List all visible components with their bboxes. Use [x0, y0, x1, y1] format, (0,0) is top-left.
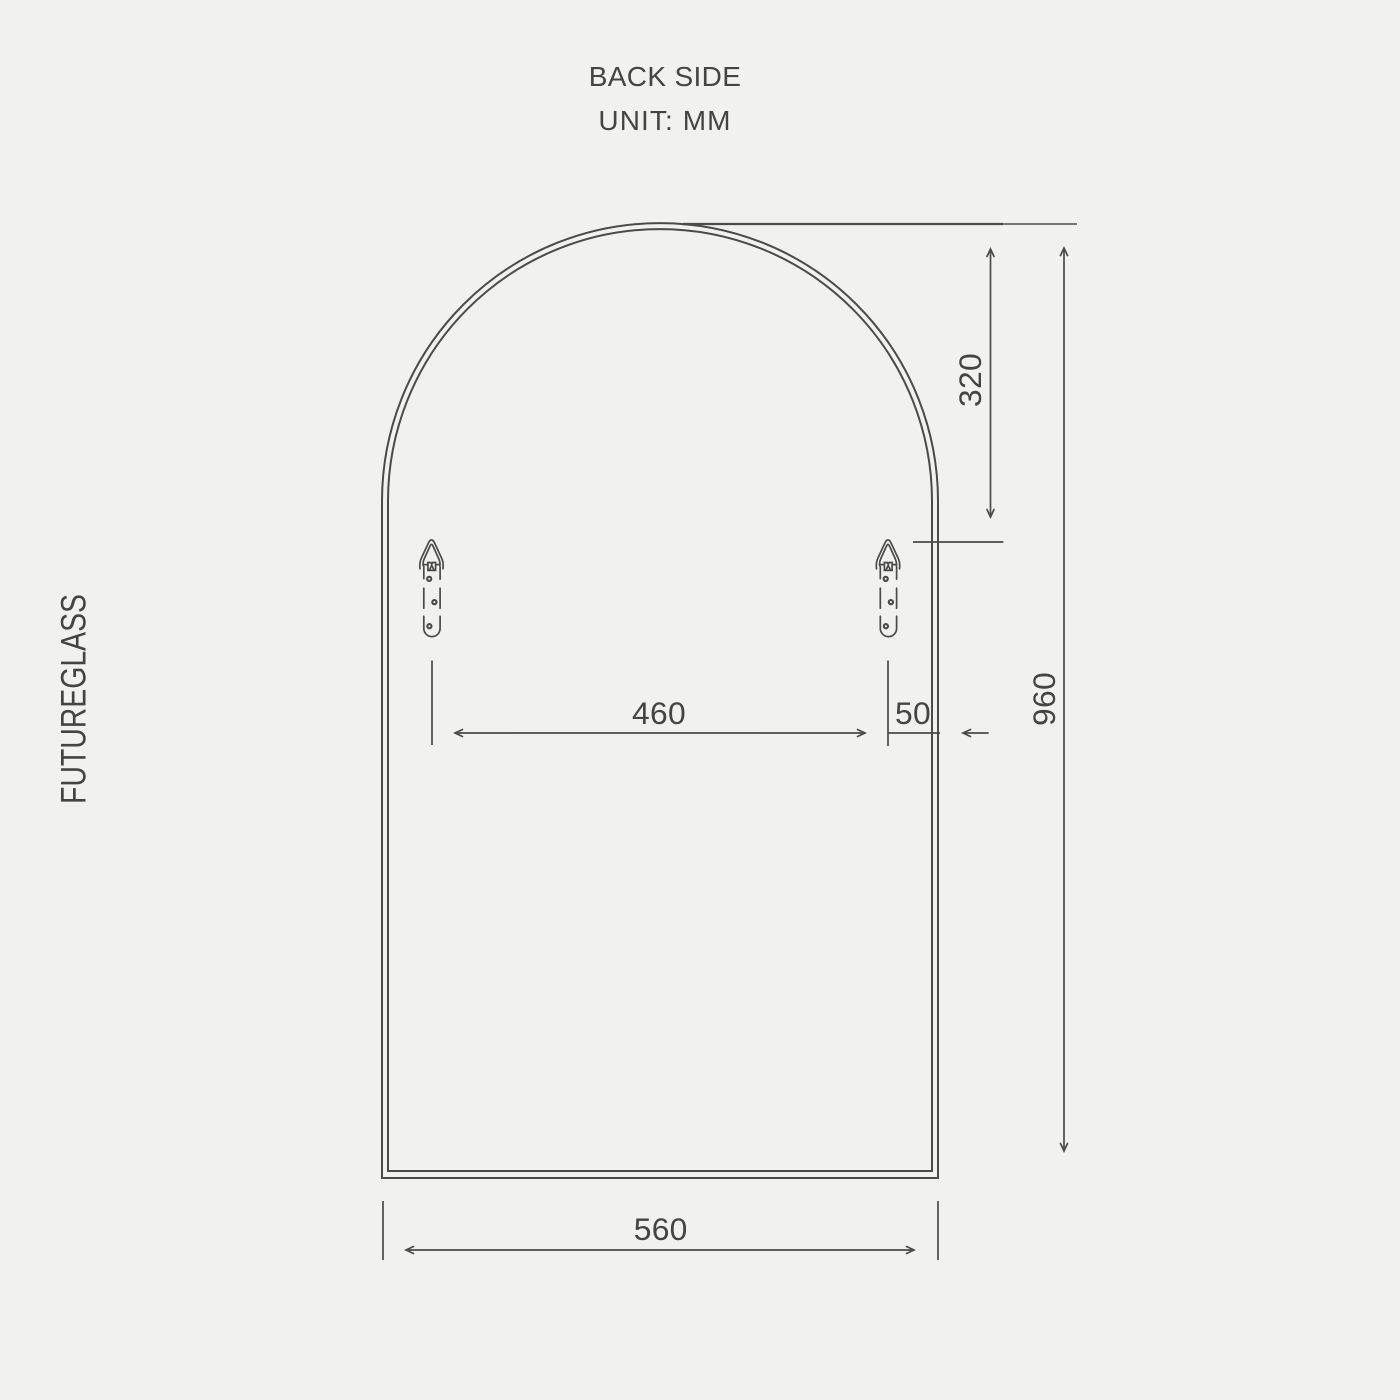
svg-text:460: 460 [632, 695, 686, 731]
svg-text:560: 560 [634, 1211, 688, 1247]
svg-text:960: 960 [1026, 672, 1062, 726]
svg-text:FUTUREGLASS: FUTUREGLASS [55, 594, 94, 804]
svg-text:BACK SIDE: BACK SIDE [589, 61, 742, 92]
svg-text:UNIT: MM: UNIT: MM [598, 105, 731, 136]
svg-text:320: 320 [952, 353, 988, 407]
svg-text:50: 50 [895, 695, 931, 731]
